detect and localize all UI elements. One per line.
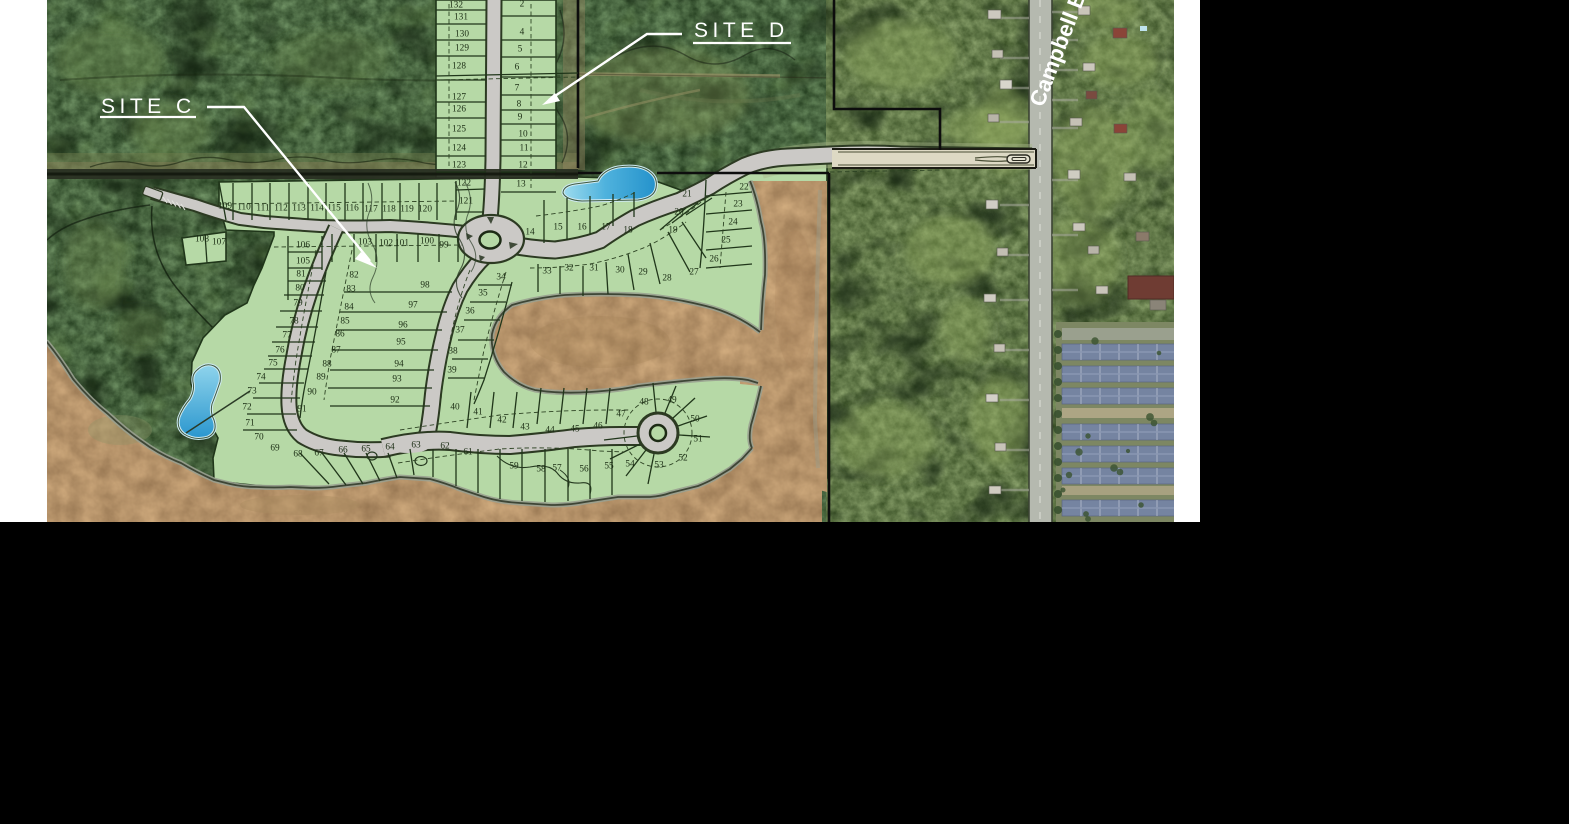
svg-text:50: 50 — [690, 415, 700, 425]
svg-text:42: 42 — [497, 416, 507, 426]
svg-text:114: 114 — [310, 204, 324, 214]
svg-text:33: 33 — [542, 267, 552, 277]
svg-text:95: 95 — [396, 338, 406, 348]
svg-text:66: 66 — [338, 446, 348, 456]
svg-text:67: 67 — [314, 449, 324, 459]
svg-text:97: 97 — [408, 301, 418, 311]
svg-text:75: 75 — [268, 359, 278, 369]
svg-text:34: 34 — [496, 273, 506, 283]
svg-text:68: 68 — [293, 450, 303, 460]
svg-text:106: 106 — [296, 241, 310, 251]
svg-text:61: 61 — [463, 448, 473, 458]
svg-text:111: 111 — [256, 204, 270, 214]
svg-text:15: 15 — [553, 223, 563, 233]
svg-text:52: 52 — [678, 454, 688, 464]
svg-text:6: 6 — [515, 63, 520, 73]
svg-text:120: 120 — [418, 205, 432, 215]
svg-text:91: 91 — [297, 405, 307, 415]
svg-text:118: 118 — [382, 205, 396, 215]
svg-text:21: 21 — [682, 190, 692, 200]
svg-text:72: 72 — [242, 403, 252, 413]
svg-text:103: 103 — [358, 238, 372, 248]
svg-text:94: 94 — [394, 360, 404, 370]
svg-text:13: 13 — [516, 180, 526, 190]
svg-text:10: 10 — [518, 130, 528, 140]
svg-text:36: 36 — [465, 307, 475, 317]
svg-text:27: 27 — [689, 268, 699, 278]
svg-text:96: 96 — [398, 321, 408, 331]
svg-text:SITE D: SITE D — [694, 19, 789, 42]
svg-text:57: 57 — [552, 464, 562, 474]
svg-text:74: 74 — [256, 373, 266, 383]
svg-text:37: 37 — [455, 326, 465, 336]
svg-text:85: 85 — [340, 317, 350, 327]
svg-text:101: 101 — [395, 239, 409, 249]
svg-text:78: 78 — [289, 317, 299, 327]
svg-text:28: 28 — [662, 274, 672, 284]
svg-text:12: 12 — [518, 161, 528, 171]
svg-text:121: 121 — [459, 197, 473, 207]
svg-text:22: 22 — [739, 183, 749, 193]
svg-text:47: 47 — [616, 410, 626, 420]
svg-text:77: 77 — [282, 331, 292, 341]
svg-text:109: 109 — [218, 202, 232, 212]
svg-text:24: 24 — [728, 218, 738, 228]
svg-text:69: 69 — [270, 444, 280, 454]
svg-text:51: 51 — [693, 435, 703, 445]
svg-text:110: 110 — [237, 203, 251, 213]
svg-text:17: 17 — [601, 223, 611, 233]
svg-text:62: 62 — [440, 442, 450, 452]
svg-text:89: 89 — [316, 373, 326, 383]
svg-text:98: 98 — [420, 281, 430, 291]
svg-text:117: 117 — [364, 205, 378, 215]
svg-text:SITE C: SITE C — [101, 95, 196, 118]
svg-text:59: 59 — [509, 462, 519, 472]
svg-text:84: 84 — [344, 303, 354, 313]
svg-text:44: 44 — [545, 426, 555, 436]
svg-text:30: 30 — [615, 266, 625, 276]
svg-text:32: 32 — [564, 264, 574, 274]
svg-text:41: 41 — [473, 408, 483, 418]
svg-text:83: 83 — [346, 285, 356, 295]
svg-text:126: 126 — [452, 105, 466, 115]
svg-text:80: 80 — [295, 284, 305, 294]
svg-text:31: 31 — [589, 264, 599, 274]
svg-text:14: 14 — [525, 228, 535, 238]
svg-text:71: 71 — [245, 419, 255, 429]
svg-text:20: 20 — [674, 208, 684, 218]
svg-text:54: 54 — [625, 460, 635, 470]
svg-text:99: 99 — [439, 241, 449, 251]
svg-text:35: 35 — [478, 289, 488, 299]
svg-text:19: 19 — [668, 226, 678, 236]
svg-text:92: 92 — [390, 396, 400, 406]
svg-text:39: 39 — [447, 366, 457, 376]
svg-text:48: 48 — [639, 398, 649, 408]
svg-text:86: 86 — [335, 330, 345, 340]
svg-text:40: 40 — [450, 403, 460, 413]
svg-text:43: 43 — [520, 423, 530, 433]
svg-text:7: 7 — [515, 84, 520, 94]
svg-text:132: 132 — [449, 1, 463, 11]
svg-text:127: 127 — [452, 93, 466, 103]
svg-text:25: 25 — [721, 236, 731, 246]
svg-text:88: 88 — [322, 360, 332, 370]
svg-text:53: 53 — [654, 461, 664, 471]
svg-text:2: 2 — [520, 0, 525, 10]
svg-text:29: 29 — [638, 268, 648, 278]
svg-text:129: 129 — [455, 44, 469, 54]
svg-text:116: 116 — [345, 204, 359, 214]
svg-text:23: 23 — [733, 200, 743, 210]
svg-text:79: 79 — [293, 299, 303, 309]
svg-text:65: 65 — [361, 445, 371, 455]
svg-text:58: 58 — [536, 465, 546, 475]
svg-text:123: 123 — [452, 161, 466, 171]
svg-text:128: 128 — [452, 62, 466, 72]
svg-text:119: 119 — [400, 205, 414, 215]
svg-text:49: 49 — [667, 396, 677, 406]
svg-text:130: 130 — [455, 30, 469, 40]
svg-text:70: 70 — [254, 433, 264, 443]
svg-text:131: 131 — [454, 13, 468, 23]
svg-text:112: 112 — [274, 204, 288, 214]
svg-text:45: 45 — [570, 425, 580, 435]
svg-text:73: 73 — [247, 387, 257, 397]
svg-text:8: 8 — [517, 100, 522, 110]
svg-text:105: 105 — [296, 257, 310, 267]
svg-text:93: 93 — [392, 375, 402, 385]
svg-text:124: 124 — [452, 144, 466, 154]
svg-text:113: 113 — [292, 204, 306, 214]
svg-text:63: 63 — [411, 441, 421, 451]
svg-text:18: 18 — [623, 226, 633, 236]
svg-text:38: 38 — [448, 347, 458, 357]
svg-text:76: 76 — [275, 346, 285, 356]
svg-text:82: 82 — [349, 271, 359, 281]
svg-text:9: 9 — [518, 113, 523, 123]
svg-text:26: 26 — [709, 255, 719, 265]
svg-text:90: 90 — [307, 388, 317, 398]
svg-text:107: 107 — [212, 238, 226, 248]
svg-text:16: 16 — [577, 223, 587, 233]
svg-text:125: 125 — [452, 125, 466, 135]
svg-text:55: 55 — [604, 462, 614, 472]
svg-text:87: 87 — [331, 346, 341, 356]
svg-text:4: 4 — [520, 28, 525, 38]
svg-text:5: 5 — [518, 45, 523, 55]
svg-text:64: 64 — [385, 443, 395, 453]
svg-text:46: 46 — [593, 422, 603, 432]
svg-text:102: 102 — [379, 239, 393, 249]
svg-text:108: 108 — [195, 235, 209, 245]
svg-text:81: 81 — [296, 270, 306, 280]
svg-text:56: 56 — [579, 465, 589, 475]
svg-text:122: 122 — [457, 179, 471, 189]
svg-text:100: 100 — [420, 237, 434, 247]
svg-text:11: 11 — [520, 144, 529, 154]
